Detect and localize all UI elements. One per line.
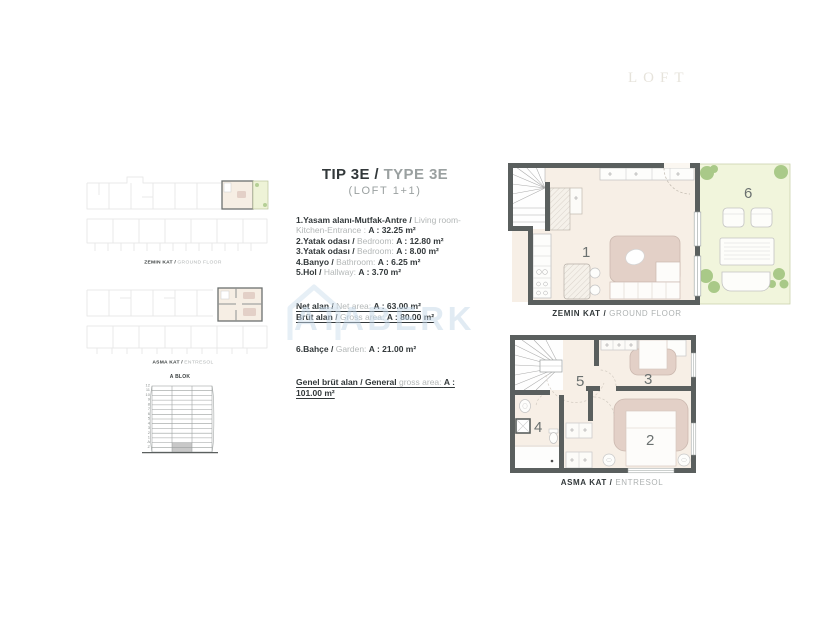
top-cabinets	[600, 168, 694, 180]
overview-ground-caption-en: GROUND FLOOR	[177, 259, 221, 265]
bedroom3-wardrobe	[601, 340, 637, 350]
storage-floor	[515, 447, 559, 468]
room-number-garden: 6	[744, 185, 752, 202]
room-number-bathroom: 4	[534, 419, 542, 436]
floorplan-entresol-drawing: 5 3 4 2	[508, 333, 698, 477]
room-list: 1.Yasam alanı-Mutfak-Antre / Living room…	[296, 215, 468, 277]
kitchen-counter	[533, 234, 551, 298]
room-number-bedroom3: 3	[644, 371, 652, 388]
room-row-living: 1.Yasam alanı-Mutfak-Antre / Living room…	[296, 215, 468, 236]
room-row-bathroom: 4.Banyo / Bathroom: A : 6.25 m²	[296, 257, 468, 267]
unit-title: TIP 3E / TYPE 3E	[296, 166, 474, 184]
overview-plan-entresol: ASMA KAT / ENTRESOL	[85, 280, 281, 375]
unit-subtitle: (LOFT 1+1)	[296, 185, 474, 197]
overview-entresol-drawing	[85, 280, 281, 358]
room-row-bedroom1: 2.Yatak odası / Bedroom: A : 12.80 m²	[296, 236, 468, 246]
staircase	[512, 167, 545, 229]
elevation-drawing	[138, 374, 222, 474]
building-elevation: A BLOK 12 11 10 9 8 7 6 5 4 3 2 1 A Z	[138, 374, 222, 474]
toilet	[550, 433, 558, 444]
unit-info: TIP 3E / TYPE 3E (LOFT 1+1) 1.Yasam alan…	[296, 166, 474, 399]
sofa	[610, 236, 680, 299]
overview-ground-caption-tr: ZEMIN KAT /	[144, 259, 176, 265]
brand-logo: LOFT	[628, 70, 690, 87]
floorplan-ground: 1 6 ZEMIN KAT / GROUND FLOOR	[508, 160, 792, 322]
overview-entresol-highlighted-unit	[218, 288, 262, 321]
room-row-bedroom2: 3.Yatak odası / Bedroom: A : 8.00 m²	[296, 246, 468, 256]
overview-plan-ground: ZEMIN KAT / GROUND FLOOR	[85, 173, 281, 268]
staircase-entresol	[515, 340, 563, 390]
overview-entresol-caption: ASMA KAT / ENTRESOL	[126, 359, 240, 365]
floorplan-ground-drawing: 1 6	[508, 160, 792, 308]
room-number-living: 1	[582, 244, 590, 261]
room-number-bedroom2: 2	[646, 432, 654, 449]
summary-garden-area: 6.Bahçe / Garden: A : 21.00 m²	[296, 344, 468, 355]
entry-opening	[664, 163, 690, 168]
overview-ground-highlighted-unit	[222, 181, 268, 209]
overview-ground-drawing	[85, 173, 281, 257]
summary-gross-area: Brüt alan / Gross area: A : 80.00 m²	[296, 312, 468, 323]
floor-plan-sheet: LOFT ZEMIN KAT / GROUND FLOOR	[0, 0, 830, 630]
floorplan-entresol-caption: ASMA KAT / ENTRESOL	[508, 478, 716, 487]
overview-entresol-caption-en: ENTRESOL	[184, 359, 213, 365]
overview-ground-caption: ZEMIN KAT / GROUND FLOOR	[126, 259, 240, 265]
floorplan-ground-caption: ZEMIN KAT / GROUND FLOOR	[508, 309, 726, 318]
unit-title-tr: TIP 3E /	[322, 166, 379, 183]
summary-general-gross-area: Genel brüt alan / General gross area: A …	[296, 377, 468, 399]
unit-title-en: TYPE 3E	[384, 166, 449, 183]
closet-2	[570, 188, 582, 214]
overview-entresol-caption-tr: ASMA KAT /	[152, 359, 183, 365]
floorplan-entresol: 5 3 4 2 ASMA KAT / ENTRESOL	[508, 333, 698, 491]
room-number-hall: 5	[576, 373, 584, 390]
closet	[550, 188, 570, 230]
room-row-hallway: 5.Hol / Hallway: A : 3.70 m²	[296, 267, 468, 277]
summary-net-area: Net alan / Net area: A : 63.00 m²	[296, 301, 468, 312]
